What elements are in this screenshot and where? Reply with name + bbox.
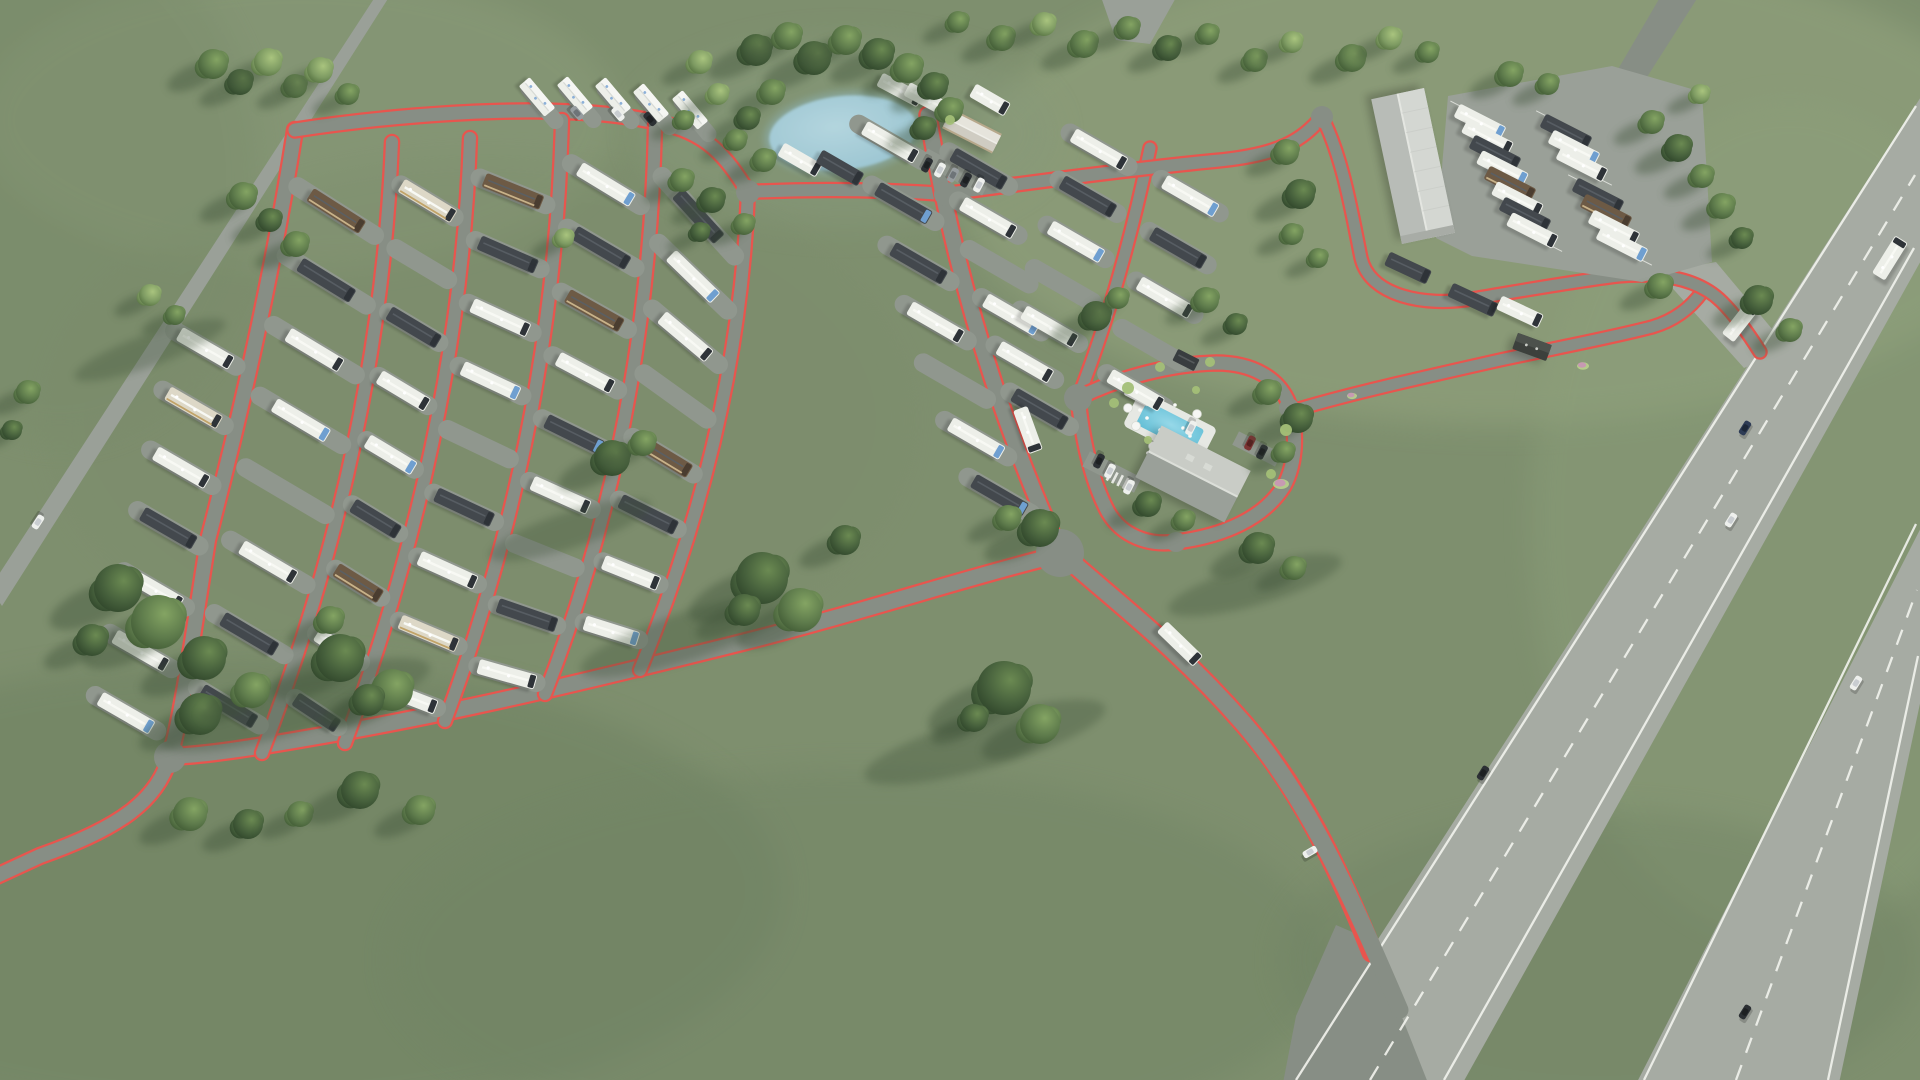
- tree-canopy: [759, 79, 785, 105]
- tree-canopy: [995, 505, 1021, 531]
- tree-canopy: [1273, 139, 1299, 165]
- tree-canopy: [1116, 16, 1140, 40]
- tree-canopy: [912, 116, 936, 140]
- tree-canopy: [131, 595, 185, 649]
- tree-canopy: [1197, 23, 1219, 45]
- tree-canopy: [725, 129, 747, 151]
- tree-canopy: [316, 606, 344, 634]
- tree-canopy: [1173, 509, 1195, 531]
- pool-umbrella: [1193, 410, 1202, 419]
- tree-canopy: [1308, 248, 1328, 268]
- flower-bed-blooms: [1348, 393, 1355, 398]
- pool-umbrella: [1132, 422, 1141, 431]
- bush: [1109, 398, 1119, 408]
- tree-canopy: [229, 182, 257, 210]
- tree-canopy: [774, 22, 802, 50]
- tree-canopy: [1778, 318, 1802, 342]
- tree-canopy: [173, 797, 207, 831]
- tree-canopy: [139, 284, 161, 306]
- tree-canopy: [76, 624, 108, 656]
- tree-canopy: [862, 38, 894, 70]
- tree-canopy: [316, 634, 364, 682]
- tree-canopy: [1537, 73, 1559, 95]
- tree-canopy: [1255, 379, 1281, 405]
- tree-canopy: [1021, 509, 1059, 547]
- tree-canopy: [736, 106, 760, 130]
- tree-canopy: [1640, 110, 1664, 134]
- bush: [1144, 436, 1152, 444]
- tree-canopy: [690, 222, 710, 242]
- tree-canopy: [2, 420, 22, 440]
- tree-canopy: [1378, 26, 1402, 50]
- pool-lounger: [1138, 408, 1142, 412]
- tree-canopy: [337, 83, 359, 105]
- junction-patch: [1064, 384, 1092, 412]
- tree-canopy: [554, 228, 574, 248]
- tree-canopy: [830, 525, 860, 555]
- tree-canopy: [707, 83, 729, 105]
- pool-lounger: [1145, 416, 1149, 420]
- tree-canopy: [1497, 61, 1523, 87]
- tree-canopy: [1225, 313, 1247, 335]
- pool-lounger: [1173, 403, 1177, 407]
- tree-canopy: [1690, 164, 1714, 188]
- tree-canopy: [920, 72, 948, 100]
- tree-canopy: [1709, 193, 1735, 219]
- tree-canopy: [94, 564, 142, 612]
- bush: [1192, 386, 1200, 394]
- tree-canopy: [670, 168, 694, 192]
- tree-canopy: [893, 53, 923, 83]
- tree-canopy: [182, 636, 226, 680]
- bush: [1122, 382, 1134, 394]
- bush: [945, 115, 955, 125]
- flower-bed-blooms: [1274, 479, 1285, 486]
- tree-canopy: [1743, 285, 1773, 315]
- tree-canopy: [283, 231, 309, 257]
- tree-canopy: [1664, 134, 1692, 162]
- rv-park-aerial-render: [0, 0, 1920, 1080]
- tree-canopy: [752, 148, 776, 172]
- tree-canopy: [688, 50, 712, 74]
- tree-canopy: [254, 48, 282, 76]
- tree-canopy: [1135, 491, 1161, 517]
- tree-canopy: [1731, 227, 1753, 249]
- tree-canopy: [1242, 532, 1274, 564]
- tree-canopy: [1285, 179, 1315, 209]
- bush: [1266, 469, 1276, 479]
- tree-canopy: [699, 187, 725, 213]
- tree-canopy: [1281, 31, 1303, 53]
- tree-canopy: [630, 430, 656, 456]
- tree-canopy: [165, 305, 185, 325]
- tree-canopy: [233, 809, 263, 839]
- flower-bed-blooms: [1578, 362, 1586, 367]
- tree-canopy: [778, 588, 822, 632]
- pool-umbrella: [1124, 404, 1133, 413]
- tree-canopy: [234, 672, 270, 708]
- tree-canopy: [1281, 223, 1303, 245]
- tree-canopy: [405, 795, 435, 825]
- tree-canopy: [947, 11, 969, 33]
- bush: [1205, 357, 1215, 367]
- tree-canopy: [733, 213, 755, 235]
- tree-canopy: [258, 208, 282, 232]
- tree-canopy: [728, 594, 760, 626]
- tree-canopy: [674, 110, 694, 130]
- tree-canopy: [198, 49, 228, 79]
- junction-patch: [1311, 106, 1333, 128]
- tree-canopy: [16, 380, 40, 404]
- scene-canvas: [0, 0, 1920, 1080]
- bush: [1280, 424, 1292, 436]
- north-road-east: [748, 190, 946, 194]
- tree-canopy: [1647, 273, 1673, 299]
- tree-canopy: [1193, 287, 1219, 313]
- tree-canopy: [1032, 12, 1056, 36]
- tree-canopy: [352, 684, 384, 716]
- tree-canopy: [1690, 84, 1710, 104]
- junction-patch: [736, 180, 760, 204]
- tree-canopy: [307, 57, 333, 83]
- tree-canopy: [1107, 287, 1129, 309]
- tree-canopy: [831, 25, 861, 55]
- tree-canopy: [341, 771, 379, 809]
- tree-canopy: [960, 704, 988, 732]
- tree-canopy: [1020, 704, 1060, 744]
- tree-canopy: [1282, 556, 1306, 580]
- tree-canopy: [1417, 41, 1439, 63]
- bush: [1155, 362, 1165, 372]
- tree-canopy: [1273, 441, 1295, 463]
